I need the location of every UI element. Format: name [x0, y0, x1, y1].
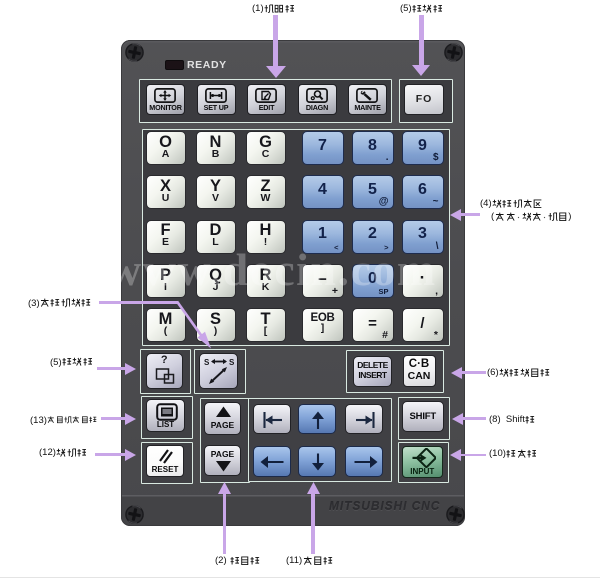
svg-text:S: S	[204, 358, 210, 367]
svg-text:S: S	[229, 358, 235, 367]
